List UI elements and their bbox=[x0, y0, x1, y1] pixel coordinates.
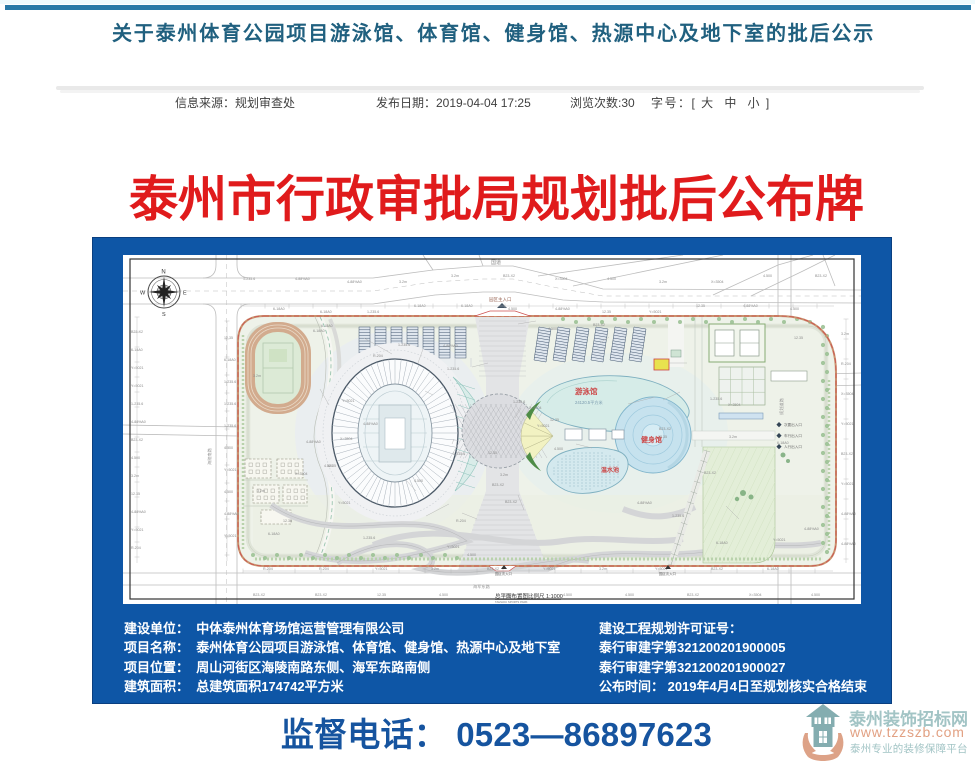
svg-text:Y=5021: Y=5021 bbox=[224, 534, 237, 538]
svg-text:4.500: 4.500 bbox=[224, 490, 233, 494]
svg-text:X=3504: X=3504 bbox=[841, 392, 854, 396]
svg-text:4-88%A0: 4-88%A0 bbox=[443, 344, 458, 348]
svg-text:R-204: R-204 bbox=[373, 354, 383, 358]
svg-text:4.500: 4.500 bbox=[131, 456, 140, 460]
svg-text:4.500: 4.500 bbox=[548, 327, 557, 331]
svg-text:6-18A0: 6-18A0 bbox=[716, 541, 728, 545]
svg-text:3.2m: 3.2m bbox=[399, 280, 407, 284]
svg-text:R-204: R-204 bbox=[131, 546, 141, 550]
svg-text:B23-X2: B23-X2 bbox=[711, 567, 723, 571]
svg-text:X=3504: X=3504 bbox=[728, 403, 741, 407]
svg-text:S: S bbox=[162, 312, 166, 318]
svg-text:6-18A0: 6-18A0 bbox=[268, 532, 280, 536]
svg-text:国道: 国道 bbox=[491, 259, 501, 266]
svg-text:12.35: 12.35 bbox=[488, 451, 497, 455]
svg-text:4-88%A0: 4-88%A0 bbox=[306, 440, 321, 444]
svg-text:1-235.6: 1-235.6 bbox=[243, 277, 255, 281]
svg-text:4.500: 4.500 bbox=[607, 277, 616, 281]
svg-text:4.500: 4.500 bbox=[224, 446, 233, 450]
svg-text:E: E bbox=[183, 290, 187, 296]
svg-text:温水池: 温水池 bbox=[601, 466, 619, 474]
svg-text:12.35: 12.35 bbox=[224, 336, 233, 340]
svg-text:海军东路: 海军东路 bbox=[473, 583, 491, 590]
svg-text:4.500: 4.500 bbox=[467, 553, 476, 557]
svg-text:Y=5021: Y=5021 bbox=[537, 424, 550, 428]
svg-text:12.35: 12.35 bbox=[377, 593, 386, 597]
svg-text:Y=5021: Y=5021 bbox=[342, 399, 355, 403]
svg-text:X=3504: X=3504 bbox=[295, 472, 308, 476]
svg-text:4-88%A0: 4-88%A0 bbox=[295, 277, 310, 281]
svg-text:Y=5021: Y=5021 bbox=[543, 567, 556, 571]
svg-text:X=3504: X=3504 bbox=[340, 437, 353, 441]
svg-text:4.500: 4.500 bbox=[811, 593, 820, 597]
svg-text:6-18A0: 6-18A0 bbox=[767, 567, 779, 571]
svg-text:3.2m: 3.2m bbox=[729, 435, 737, 439]
svg-text:1-235.6: 1-235.6 bbox=[513, 400, 525, 404]
svg-text:3.2m: 3.2m bbox=[253, 374, 261, 378]
svg-text:Y=5021: Y=5021 bbox=[224, 468, 237, 472]
svg-text:3.2m: 3.2m bbox=[599, 567, 607, 571]
svg-text:X=3504: X=3504 bbox=[529, 406, 542, 410]
svg-text:B23-X2: B23-X2 bbox=[687, 593, 699, 597]
svg-text:Y=5021: Y=5021 bbox=[841, 482, 854, 486]
svg-text:规划道路: 规划道路 bbox=[778, 397, 785, 415]
svg-text:3.2m: 3.2m bbox=[431, 567, 439, 571]
svg-text:W: W bbox=[140, 290, 146, 296]
svg-text:12.35: 12.35 bbox=[602, 310, 611, 314]
svg-text:4-88%A0: 4-88%A0 bbox=[363, 422, 378, 426]
svg-text:B23-X2: B23-X2 bbox=[593, 323, 605, 327]
svg-text:B23-X2: B23-X2 bbox=[253, 593, 265, 597]
svg-text:4.500: 4.500 bbox=[508, 307, 517, 311]
svg-text:B23-X2: B23-X2 bbox=[659, 427, 671, 431]
svg-text:园区次入口: 园区次入口 bbox=[495, 571, 512, 576]
svg-text:B23-X2: B23-X2 bbox=[503, 274, 515, 278]
svg-text:4-88%A0: 4-88%A0 bbox=[637, 501, 652, 505]
svg-text:Y=5021: Y=5021 bbox=[447, 545, 460, 549]
svg-text:1-235.6: 1-235.6 bbox=[453, 452, 465, 456]
svg-text:Y=5021: Y=5021 bbox=[131, 384, 144, 388]
svg-text:4.500: 4.500 bbox=[439, 593, 448, 597]
svg-text:3.2m: 3.2m bbox=[257, 489, 265, 493]
svg-text:4.500: 4.500 bbox=[414, 479, 423, 483]
svg-text:1-235.6: 1-235.6 bbox=[224, 402, 236, 406]
svg-text:1-235.6: 1-235.6 bbox=[672, 514, 684, 518]
svg-text:6-18A0: 6-18A0 bbox=[320, 310, 332, 314]
svg-text:R-204: R-204 bbox=[263, 567, 273, 571]
svg-text:6-18A0: 6-18A0 bbox=[321, 324, 333, 328]
svg-text:24120.5平方米: 24120.5平方米 bbox=[575, 399, 604, 406]
svg-text:R-204: R-204 bbox=[456, 519, 466, 523]
svg-text:B23-X2: B23-X2 bbox=[315, 593, 327, 597]
svg-text:Y=5021: Y=5021 bbox=[131, 528, 144, 532]
svg-text:6-18A0: 6-18A0 bbox=[131, 348, 143, 352]
svg-text:4.500: 4.500 bbox=[625, 593, 634, 597]
svg-text:3.2m: 3.2m bbox=[131, 474, 139, 478]
svg-text:4.500: 4.500 bbox=[790, 307, 799, 311]
svg-text:B23-X2: B23-X2 bbox=[815, 274, 827, 278]
svg-text:12.35: 12.35 bbox=[658, 435, 667, 439]
svg-text:1-235.6: 1-235.6 bbox=[367, 310, 379, 314]
svg-text:园区主入口: 园区主入口 bbox=[489, 296, 512, 303]
svg-text:12.35: 12.35 bbox=[283, 519, 292, 523]
svg-text:4.500: 4.500 bbox=[763, 274, 772, 278]
svg-text:X=3504: X=3504 bbox=[555, 277, 568, 281]
svg-text:12.35: 12.35 bbox=[131, 492, 140, 496]
svg-text:B23-X2: B23-X2 bbox=[487, 567, 499, 571]
svg-text:B23-X2: B23-X2 bbox=[704, 471, 716, 475]
svg-text:4-88%A0: 4-88%A0 bbox=[804, 527, 819, 531]
svg-text:B23-X2: B23-X2 bbox=[841, 452, 853, 456]
svg-text:Y=5021: Y=5021 bbox=[773, 538, 786, 542]
svg-text:6-18A0: 6-18A0 bbox=[224, 358, 236, 362]
svg-text:6-18A0: 6-18A0 bbox=[777, 441, 789, 445]
svg-text:X=3504: X=3504 bbox=[749, 593, 762, 597]
svg-text:3.2m: 3.2m bbox=[500, 473, 508, 477]
svg-text:6-18A0: 6-18A0 bbox=[273, 307, 285, 311]
svg-text:B23-X2: B23-X2 bbox=[505, 500, 517, 504]
svg-text:园区次入口: 园区次入口 bbox=[659, 571, 676, 576]
svg-text:TAIZHOU SPORTS PARK: TAIZHOU SPORTS PARK bbox=[495, 600, 528, 604]
svg-text:4.500: 4.500 bbox=[563, 593, 572, 597]
svg-text:3.2m: 3.2m bbox=[451, 274, 459, 278]
svg-text:4-88%A0: 4-88%A0 bbox=[347, 280, 362, 284]
svg-text:Y=5021: Y=5021 bbox=[649, 310, 662, 314]
svg-text:1-235.6: 1-235.6 bbox=[224, 380, 236, 384]
svg-text:R-204: R-204 bbox=[319, 567, 329, 571]
svg-text:海陵南路: 海陵南路 bbox=[206, 447, 213, 465]
svg-text:N: N bbox=[161, 270, 165, 276]
svg-text:6-18A0: 6-18A0 bbox=[313, 329, 325, 333]
svg-text:B23-X2: B23-X2 bbox=[492, 483, 504, 487]
svg-text:1-235.6: 1-235.6 bbox=[398, 343, 410, 347]
svg-text:1-235.6: 1-235.6 bbox=[224, 424, 236, 428]
svg-text:Y=5021: Y=5021 bbox=[131, 366, 144, 370]
svg-text:车行出入口: 车行出入口 bbox=[784, 433, 802, 438]
svg-text:12.35: 12.35 bbox=[794, 336, 803, 340]
svg-text:1-235.6: 1-235.6 bbox=[447, 367, 459, 371]
svg-text:次要出入口: 次要出入口 bbox=[784, 422, 802, 427]
svg-text:Y=5021: Y=5021 bbox=[841, 422, 854, 426]
svg-text:12.35: 12.35 bbox=[327, 464, 336, 468]
svg-text:X=3504: X=3504 bbox=[711, 280, 724, 284]
svg-text:游泳馆: 游泳馆 bbox=[575, 386, 598, 396]
svg-text:Y=5021: Y=5021 bbox=[375, 567, 388, 571]
svg-text:3.2m: 3.2m bbox=[659, 280, 667, 284]
svg-text:4-88%A0: 4-88%A0 bbox=[224, 512, 239, 516]
svg-text:12.35: 12.35 bbox=[550, 418, 559, 422]
svg-text:1-235.6: 1-235.6 bbox=[363, 536, 375, 540]
svg-text:4.500: 4.500 bbox=[554, 447, 563, 451]
svg-text:3.2m: 3.2m bbox=[841, 332, 849, 336]
svg-text:Y=5021: Y=5021 bbox=[338, 501, 351, 505]
svg-text:1-235.6: 1-235.6 bbox=[710, 397, 722, 401]
svg-text:4-88%A0: 4-88%A0 bbox=[555, 307, 570, 311]
